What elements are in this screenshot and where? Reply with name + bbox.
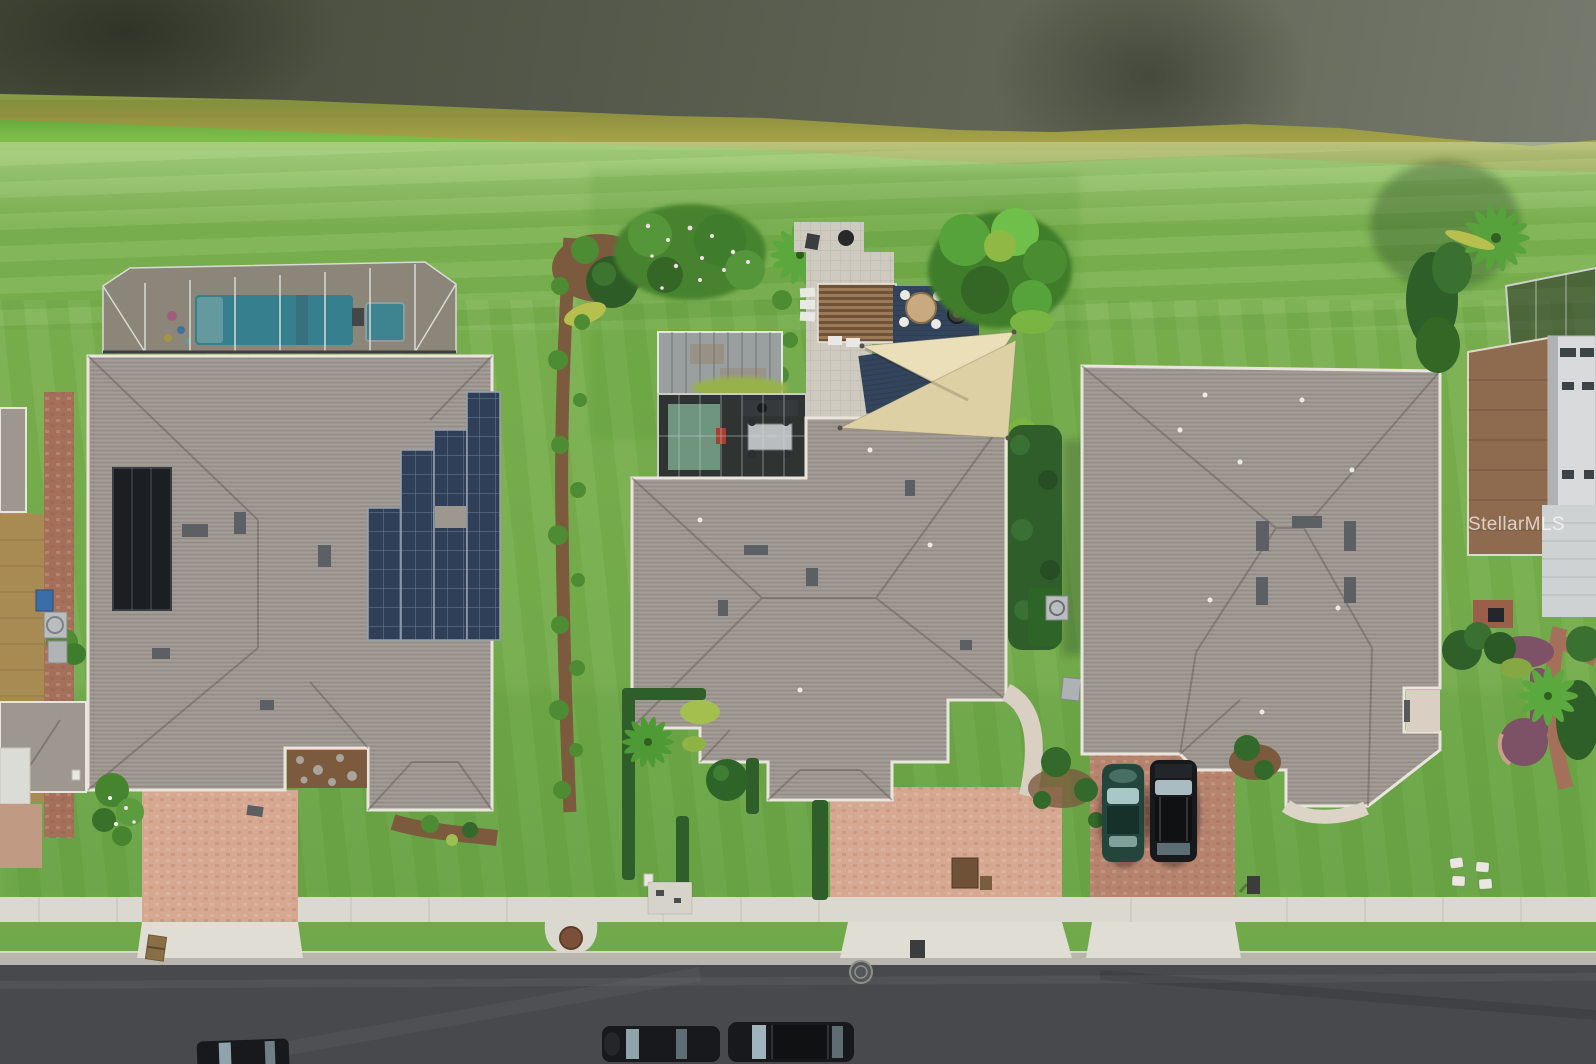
utility-marker — [72, 770, 80, 780]
grill — [757, 403, 767, 413]
middle-driveway-apron — [840, 922, 1072, 958]
pool-enclosure — [103, 262, 456, 352]
rust-patch — [690, 344, 724, 364]
stellar-mls-watermark: StellarMLS — [1468, 514, 1596, 536]
pergola — [818, 284, 896, 342]
scene-graphics — [0, 0, 1596, 1064]
utility-pad — [648, 882, 692, 914]
parked-car-partial — [197, 1038, 290, 1064]
outdoor-kitchen — [742, 400, 798, 416]
entry-shadow — [1404, 700, 1410, 722]
right-driveway-apron — [1086, 922, 1241, 958]
neighbor-roof-section — [0, 408, 26, 512]
parked-suv-black — [1150, 760, 1197, 862]
solar-thermal-panel — [113, 468, 171, 610]
patio-chair — [805, 233, 820, 250]
ac-unit — [48, 641, 67, 663]
mulch-bed — [287, 750, 367, 788]
lanai-green-mat — [668, 404, 720, 470]
neighbor-patio-pavers — [0, 804, 42, 868]
entry-court — [1406, 690, 1440, 732]
ac-unit — [1061, 677, 1081, 701]
watermark-text: StellarMLS — [1468, 514, 1565, 535]
package-box — [145, 935, 166, 961]
array-gap — [435, 506, 466, 528]
parked-suv-black-road — [728, 1022, 854, 1062]
blue-utility-box — [36, 590, 53, 611]
manhole-cover — [850, 961, 872, 983]
deck-table — [906, 293, 936, 323]
screened-lanai — [658, 394, 806, 478]
utility-cover — [560, 927, 582, 949]
lanai-table — [748, 424, 792, 450]
parked-car-black — [602, 1026, 720, 1062]
neighbor-white-building — [1542, 336, 1596, 617]
aerial-photo-scene: StellarMLS — [0, 0, 1596, 1064]
trash-bin — [910, 940, 925, 958]
round-bush — [706, 759, 748, 801]
left-neighbor-house — [0, 392, 86, 868]
grill — [838, 230, 854, 246]
yellow-shrub — [680, 700, 720, 724]
white-patio-roof — [0, 748, 30, 804]
parked-car-teal — [1102, 764, 1144, 862]
